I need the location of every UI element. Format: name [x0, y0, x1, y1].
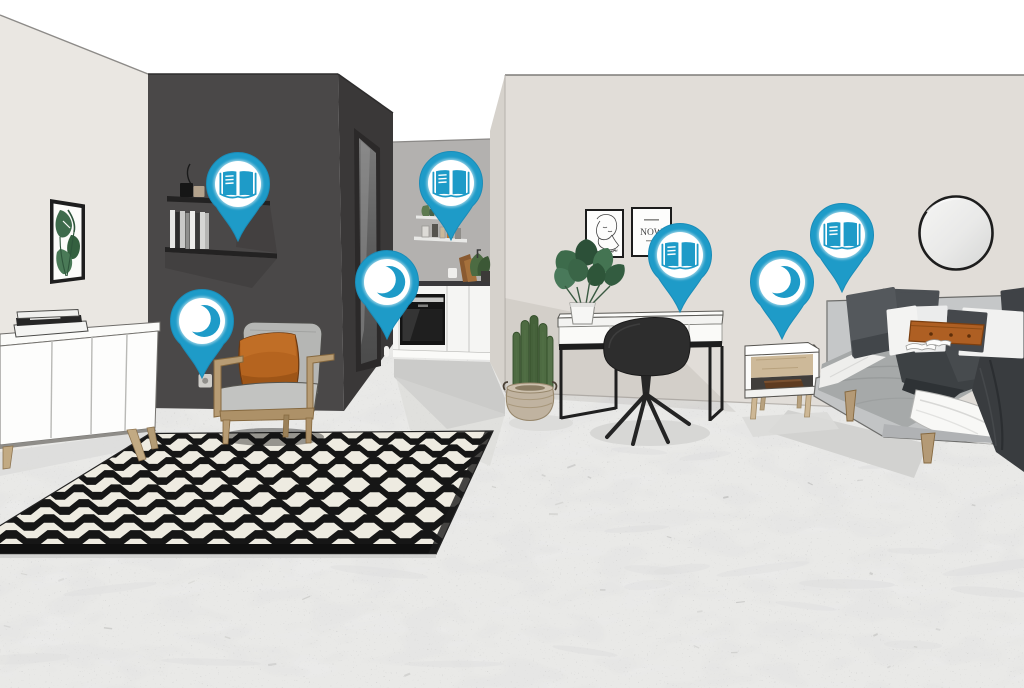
svg-text:tyw: tyw: [611, 249, 619, 254]
